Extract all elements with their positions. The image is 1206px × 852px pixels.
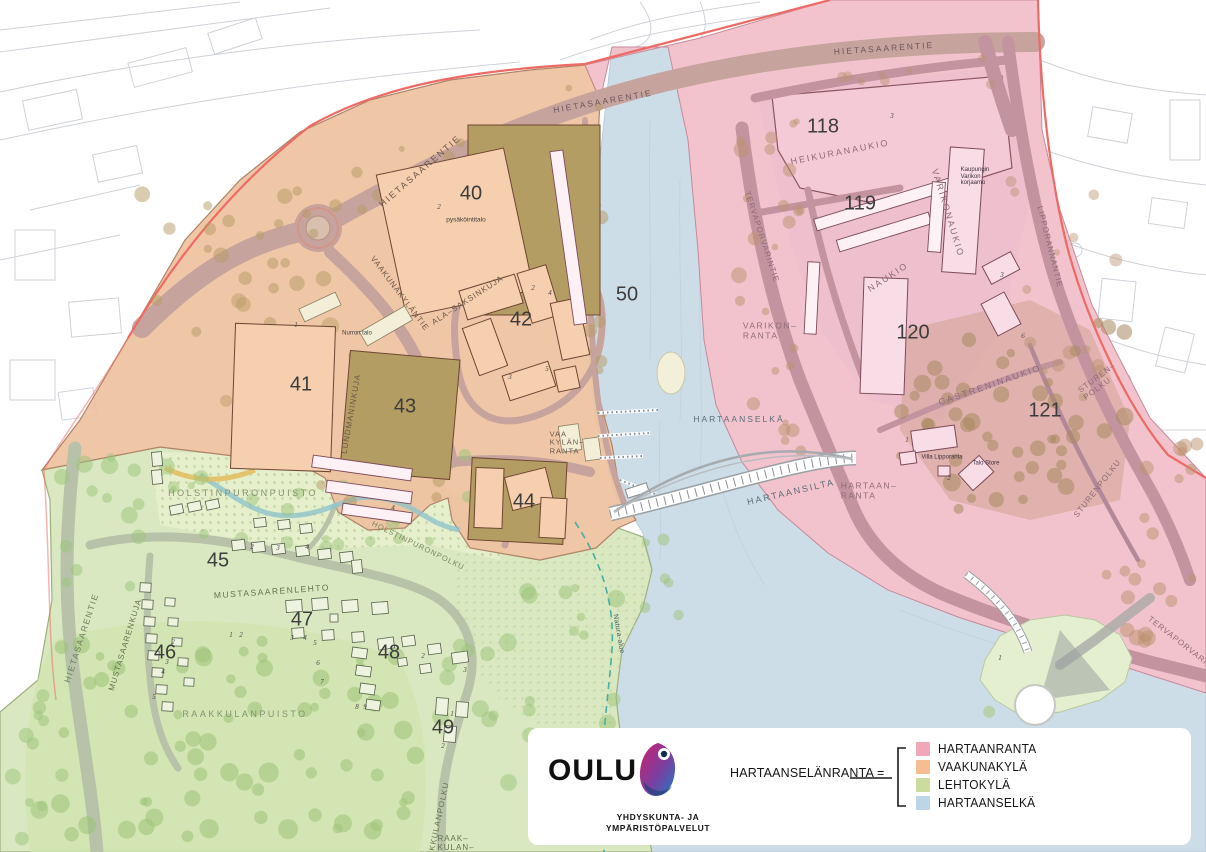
legend-panel: OULU YHDYSKUNTA- JA YMPÄRISTÖPALVELUT HA… — [528, 728, 1191, 845]
roundabout-center — [306, 216, 330, 240]
legend-label-vaakunakyla: VAAKUNAKYLÄ — [938, 760, 1027, 774]
legend-swatch-hartaanranta — [916, 742, 930, 756]
legend-swatch-hartaanselka — [916, 796, 930, 810]
legend-row-lehtokyla: LEHTOKYLÄ — [916, 776, 1042, 794]
legend-connector-line — [850, 740, 916, 812]
map-canvas — [0, 0, 1206, 852]
legend-row-hartaanranta: HARTAANRANTA — [916, 740, 1042, 758]
legend-label-hartaanranta: HARTAANRANTA — [938, 742, 1036, 756]
city-plan-map: HIETASAARENTIEHIETASAARENTIEHIETASAARENT… — [0, 0, 1206, 852]
oulu-logo-icon — [638, 741, 678, 799]
legend-swatch-vaakunakyla — [916, 760, 930, 774]
legend-swatch-lehtokyla — [916, 778, 930, 792]
legend-label-lehtokyla: LEHTOKYLÄ — [938, 778, 1010, 792]
legend-items: HARTAANRANTA VAAKUNAKYLÄ LEHTOKYLÄ HARTA… — [916, 740, 1042, 812]
island-amphitheatre — [1015, 685, 1055, 725]
small-island — [657, 352, 685, 394]
legend-row-hartaanselka: HARTAANSELKÄ — [916, 794, 1042, 812]
org-name-line2: YMPÄRISTÖPALVELUT — [583, 823, 733, 834]
legend-label-hartaanselka: HARTAANSELKÄ — [938, 796, 1035, 810]
legend-row-vaakunakyla: VAAKUNAKYLÄ — [916, 758, 1042, 776]
oulu-logo-text: OULU — [548, 754, 637, 788]
org-name-line1: YHDYSKUNTA- JA — [583, 812, 733, 823]
